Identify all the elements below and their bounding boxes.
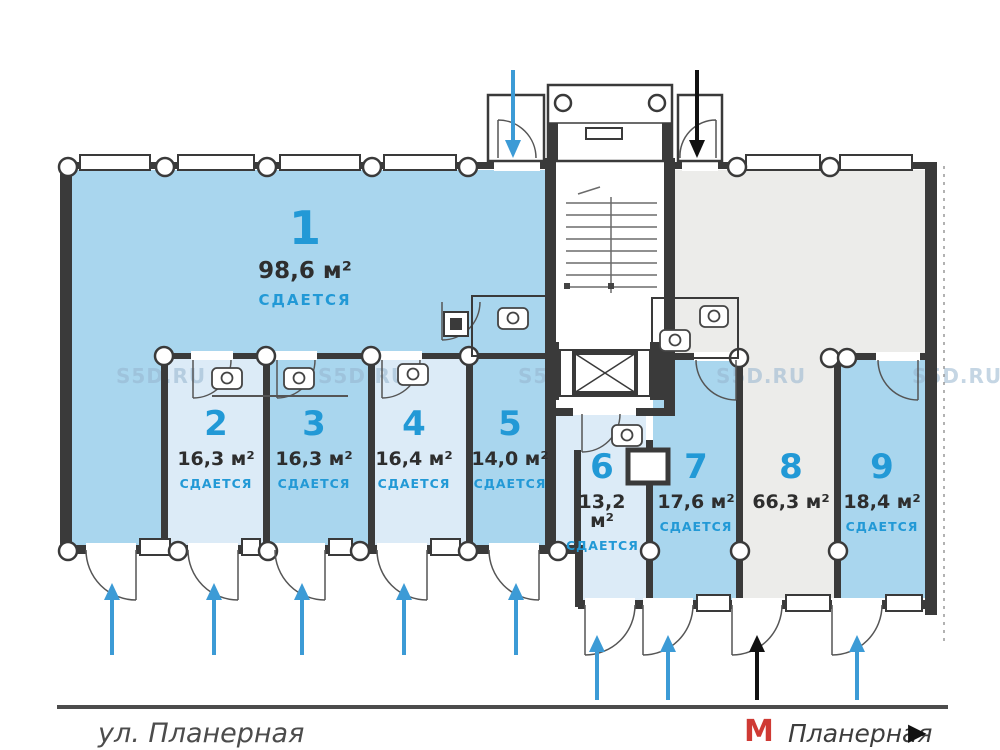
room-status: СДАЕТСЯ xyxy=(166,478,266,491)
room-number: 6 xyxy=(566,450,638,484)
street-divider-line xyxy=(57,705,948,709)
room-status: СДАЕТСЯ xyxy=(364,478,464,491)
room-area: 18,4 м² xyxy=(836,493,928,512)
room-number: 8 xyxy=(741,450,841,484)
watermark: S5D.RU xyxy=(716,364,806,388)
watermark: S5D.RU xyxy=(116,364,206,388)
room-area: 17,6 м² xyxy=(650,493,742,512)
room-4-label: 4 16,4 м² СДАЕТСЯ xyxy=(364,407,464,491)
room-area: 98,6 м² xyxy=(180,260,430,283)
room-area: 14,0 м² xyxy=(462,450,558,469)
room-number: 9 xyxy=(836,450,928,484)
room-7-label: 7 17,6 м² СДАЕТСЯ xyxy=(650,450,742,534)
room-1-label: 1 98,6 м² СДАЕТСЯ xyxy=(180,205,430,308)
room-status: СДАЕТСЯ xyxy=(566,540,638,553)
room-number: 3 xyxy=(264,407,364,441)
room-status: СДАЕТСЯ xyxy=(264,478,364,491)
watermark: S5D.RU xyxy=(318,364,408,388)
watermark: S5D.RU xyxy=(912,364,1000,388)
direction-arrow-icon: ▶ xyxy=(908,718,926,746)
room-number: 4 xyxy=(364,407,464,441)
room-area: 16,3 м² xyxy=(166,450,266,469)
room-3-label: 3 16,3 м² СДАЕТСЯ xyxy=(264,407,364,491)
room-status: СДАЕТСЯ xyxy=(462,478,558,491)
room-status: СДАЕТСЯ xyxy=(836,521,928,534)
metro-logo-icon: М xyxy=(744,714,774,749)
floorplan-page: S5D.RU S5D.RU S5D.RU S5D.RU S5D.RU xyxy=(0,0,1000,750)
entrance-vestibule xyxy=(488,85,722,161)
room-area: 13,2 м² xyxy=(566,493,638,531)
street-name: ул. Планерная xyxy=(98,718,304,749)
room-5-label: 5 14,0 м² СДАЕТСЯ xyxy=(462,407,558,491)
room-number: 5 xyxy=(462,407,558,441)
room-status: СДАЕТСЯ xyxy=(650,521,742,534)
watermark: S5D.RU xyxy=(518,364,608,388)
room-area: 16,3 м² xyxy=(264,450,364,469)
room-9-label: 9 18,4 м² СДАЕТСЯ xyxy=(836,450,928,534)
room-8-label: 8 66,3 м² xyxy=(741,450,841,521)
room-number: 7 xyxy=(650,450,742,484)
room-area: 16,4 м² xyxy=(364,450,464,469)
room-status: СДАЕТСЯ xyxy=(180,293,430,308)
room-6-label: 6 13,2 м² СДАЕТСЯ xyxy=(566,450,638,553)
room-area: 66,3 м² xyxy=(741,493,841,512)
room-2-label: 2 16,3 м² СДАЕТСЯ xyxy=(166,407,266,491)
room-number: 1 xyxy=(180,205,430,251)
room-number: 2 xyxy=(166,407,266,441)
room-6-fill-lower xyxy=(583,545,646,602)
staircase xyxy=(564,187,657,293)
